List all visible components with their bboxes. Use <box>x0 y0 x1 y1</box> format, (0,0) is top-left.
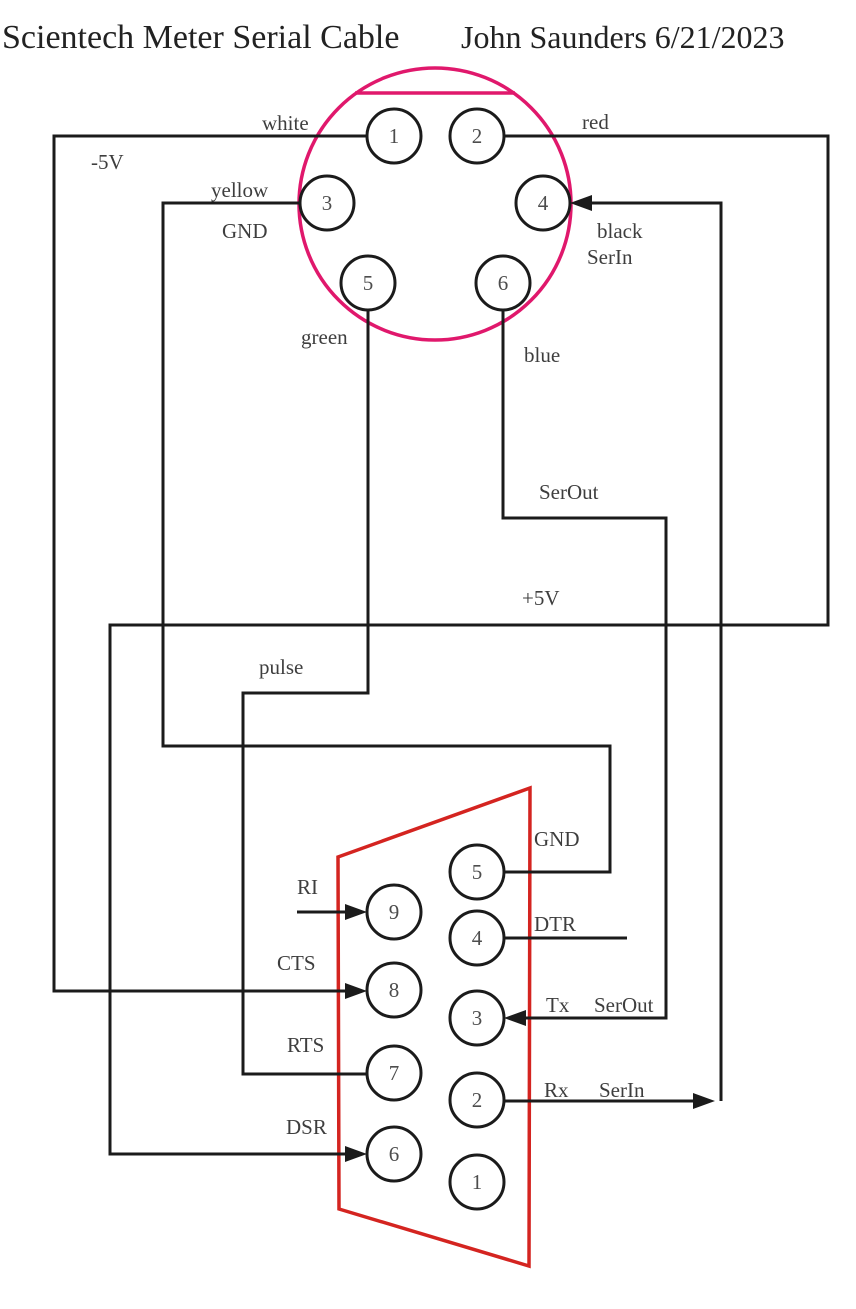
din-pin-1: 1 <box>367 109 421 163</box>
label-minus-5v: -5V <box>91 150 124 174</box>
label-green: green <box>301 325 348 349</box>
label-rts: RTS <box>287 1033 324 1057</box>
db9-pin-7-number: 7 <box>389 1061 400 1085</box>
db9-pin-8: 8 <box>367 963 421 1017</box>
author-date: John Saunders 6/21/2023 <box>461 19 785 55</box>
label-serout-db9: SerOut <box>594 993 654 1017</box>
arrowhead-into-db9-pin9 <box>345 904 367 920</box>
label-tx: Tx <box>546 993 570 1017</box>
label-blue: blue <box>524 343 560 367</box>
db9-pin-8-number: 8 <box>389 978 400 1002</box>
label-pulse: pulse <box>259 655 303 679</box>
label-ri: RI <box>297 875 318 899</box>
din-pin-2: 2 <box>450 109 504 163</box>
wire-black-serin-to-din4 <box>586 203 721 1101</box>
db9-pin-1: 1 <box>450 1155 504 1209</box>
db9-pin-9: 9 <box>367 885 421 939</box>
db9-pin-5-number: 5 <box>472 860 483 884</box>
label-dsr: DSR <box>286 1115 327 1139</box>
arrowhead-serin-end <box>693 1093 715 1109</box>
din-pin-5-number: 5 <box>363 271 374 295</box>
wiring-diagram: Scientech Meter Serial Cable John Saunde… <box>0 0 856 1304</box>
db9-pin-3: 3 <box>450 991 504 1045</box>
label-serin-din: SerIn <box>587 245 633 269</box>
din-pin-6-number: 6 <box>498 271 509 295</box>
din-pin-6: 6 <box>476 256 530 310</box>
label-serout-mid: SerOut <box>539 480 599 504</box>
din-pin-4: 4 <box>516 176 570 230</box>
label-rx: Rx <box>544 1078 569 1102</box>
db9-pin-6: 6 <box>367 1127 421 1181</box>
din-pin-1-number: 1 <box>389 124 400 148</box>
label-black: black <box>597 219 643 243</box>
label-dtr: DTR <box>534 912 576 936</box>
label-serin-db9: SerIn <box>599 1078 645 1102</box>
diagram-page: Scientech Meter Serial Cable John Saunde… <box>0 0 856 1304</box>
db9-pin-7: 7 <box>367 1046 421 1100</box>
db9-pin-9-number: 9 <box>389 900 400 924</box>
db9-pin-4: 4 <box>450 911 504 965</box>
wire-white-minus5v-to-cts <box>54 136 367 991</box>
arrowhead-into-db9-pin3 <box>504 1010 526 1026</box>
label-gnd-din: GND <box>222 219 268 243</box>
db9-pin-5: 5 <box>450 845 504 899</box>
label-gnd-db9: GND <box>534 827 580 851</box>
arrowhead-into-din-pin4 <box>570 195 592 211</box>
din-pin-3-number: 3 <box>322 191 333 215</box>
din-pin-4-number: 4 <box>538 191 549 215</box>
db9-pin-6-number: 6 <box>389 1142 400 1166</box>
din-pin-2-number: 2 <box>472 124 483 148</box>
page-title: Scientech Meter Serial Cable <box>2 19 399 56</box>
wire-blue-serout-to-tx <box>503 310 666 1018</box>
arrowhead-into-db9-pin8 <box>345 983 367 999</box>
label-white: white <box>262 111 309 135</box>
label-plus-5v: +5V <box>522 586 560 610</box>
db9-pin-2-number: 2 <box>472 1088 483 1112</box>
label-red: red <box>582 110 609 134</box>
label-yellow: yellow <box>211 178 269 202</box>
arrowhead-into-db9-pin6 <box>345 1146 367 1162</box>
din-pin-3: 3 <box>300 176 354 230</box>
db9-pin-4-number: 4 <box>472 926 483 950</box>
din-pin-5: 5 <box>341 256 395 310</box>
label-cts: CTS <box>277 951 316 975</box>
db9-pin-3-number: 3 <box>472 1006 483 1030</box>
db9-pin-2: 2 <box>450 1073 504 1127</box>
db9-pin-1-number: 1 <box>472 1170 483 1194</box>
